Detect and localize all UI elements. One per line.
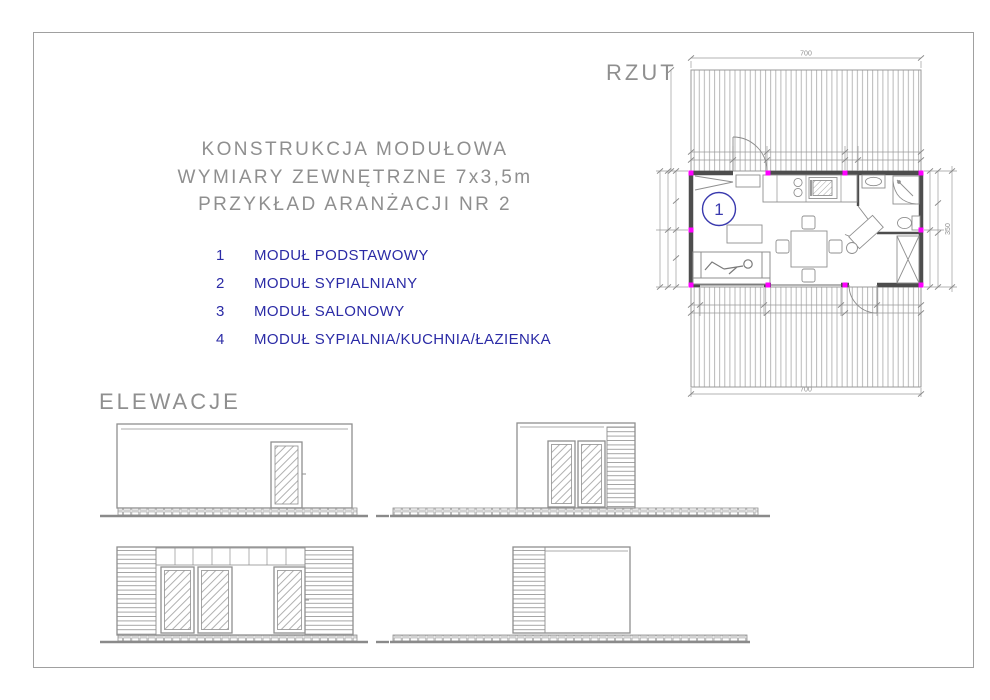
- legend-item-label: MODUŁ SYPIALNIA/KUCHNIA/ŁAZIENKA: [254, 331, 551, 348]
- legend-item-number: 4: [216, 331, 254, 348]
- deck-edge: [118, 635, 357, 641]
- sink-bowl: [794, 178, 802, 186]
- shower: [893, 176, 919, 204]
- dim-top: 700: [800, 51, 812, 58]
- deck-edge: [393, 508, 758, 515]
- bottom-deck: [691, 287, 921, 387]
- dining-table: [791, 231, 827, 267]
- legend-item-4: 4 MODUŁ SYPIALNIA/KUCHNIA/ŁAZIENKA: [216, 325, 551, 353]
- chair: [802, 269, 815, 282]
- slat-panel: [305, 547, 353, 635]
- deck-edge: [118, 508, 357, 515]
- toilet: [898, 216, 921, 230]
- module-1-number: 1: [714, 200, 723, 219]
- slat-panel: [117, 547, 156, 635]
- legend-item-label: MODUŁ SALONOWY: [254, 303, 405, 320]
- legend-item-2: 2 MODUŁ SYPIALNIANY: [216, 269, 551, 297]
- legend-item-number: 2: [216, 275, 254, 292]
- kitchen-counter: [763, 175, 857, 202]
- legend-item-label: MODUŁ SYPIALNIANY: [254, 275, 418, 292]
- chair: [802, 216, 815, 229]
- sink-bowl: [794, 188, 802, 196]
- coffee-table: [727, 225, 762, 243]
- corner-desk: [847, 215, 884, 253]
- elevation-rear: [100, 424, 389, 516]
- elevation-front: [100, 547, 389, 642]
- chair: [829, 240, 842, 253]
- elevation-side-right: [390, 423, 770, 516]
- legend-item-number: 1: [216, 247, 254, 264]
- title-line-3: PRZYKŁAD ARANŻACJI NR 2: [140, 191, 570, 219]
- legend-item-1: 1 MODUŁ PODSTAWOWY: [216, 241, 551, 269]
- wardrobe: [897, 236, 919, 283]
- entry-shelf: [695, 175, 760, 190]
- chair: [776, 240, 789, 253]
- slat-panel: [607, 427, 635, 508]
- dim-right: 350: [945, 223, 952, 235]
- title-line-2: WYMIARY ZEWNĘTRZNE 7x3,5m: [140, 164, 570, 192]
- dining-set: [776, 216, 842, 282]
- legend-item-number: 3: [216, 303, 254, 320]
- sofa: [693, 252, 770, 284]
- floor-plan-drawing: 700 700 350: [640, 45, 990, 400]
- title-line-1: KONSTRUKCJA MODUŁOWA: [140, 136, 570, 164]
- module-legend: 1 MODUŁ PODSTAWOWY 2 MODUŁ SYPIALNIANY 3…: [216, 241, 551, 353]
- elevations-drawing: [80, 410, 800, 660]
- title-block: KONSTRUKCJA MODUŁOWA WYMIARY ZEWNĘTRZNE …: [140, 136, 570, 219]
- legend-item-label: MODUŁ PODSTAWOWY: [254, 247, 429, 264]
- deck-edge: [393, 635, 747, 641]
- legend-item-3: 3 MODUŁ SALONOWY: [216, 297, 551, 325]
- elevation-side-left: [390, 547, 750, 642]
- module-1-marker: 1: [703, 193, 736, 226]
- dim-bottom: 700: [800, 387, 812, 394]
- slat-panel: [513, 547, 545, 633]
- washbasin: [862, 175, 885, 188]
- top-deck: [691, 70, 921, 171]
